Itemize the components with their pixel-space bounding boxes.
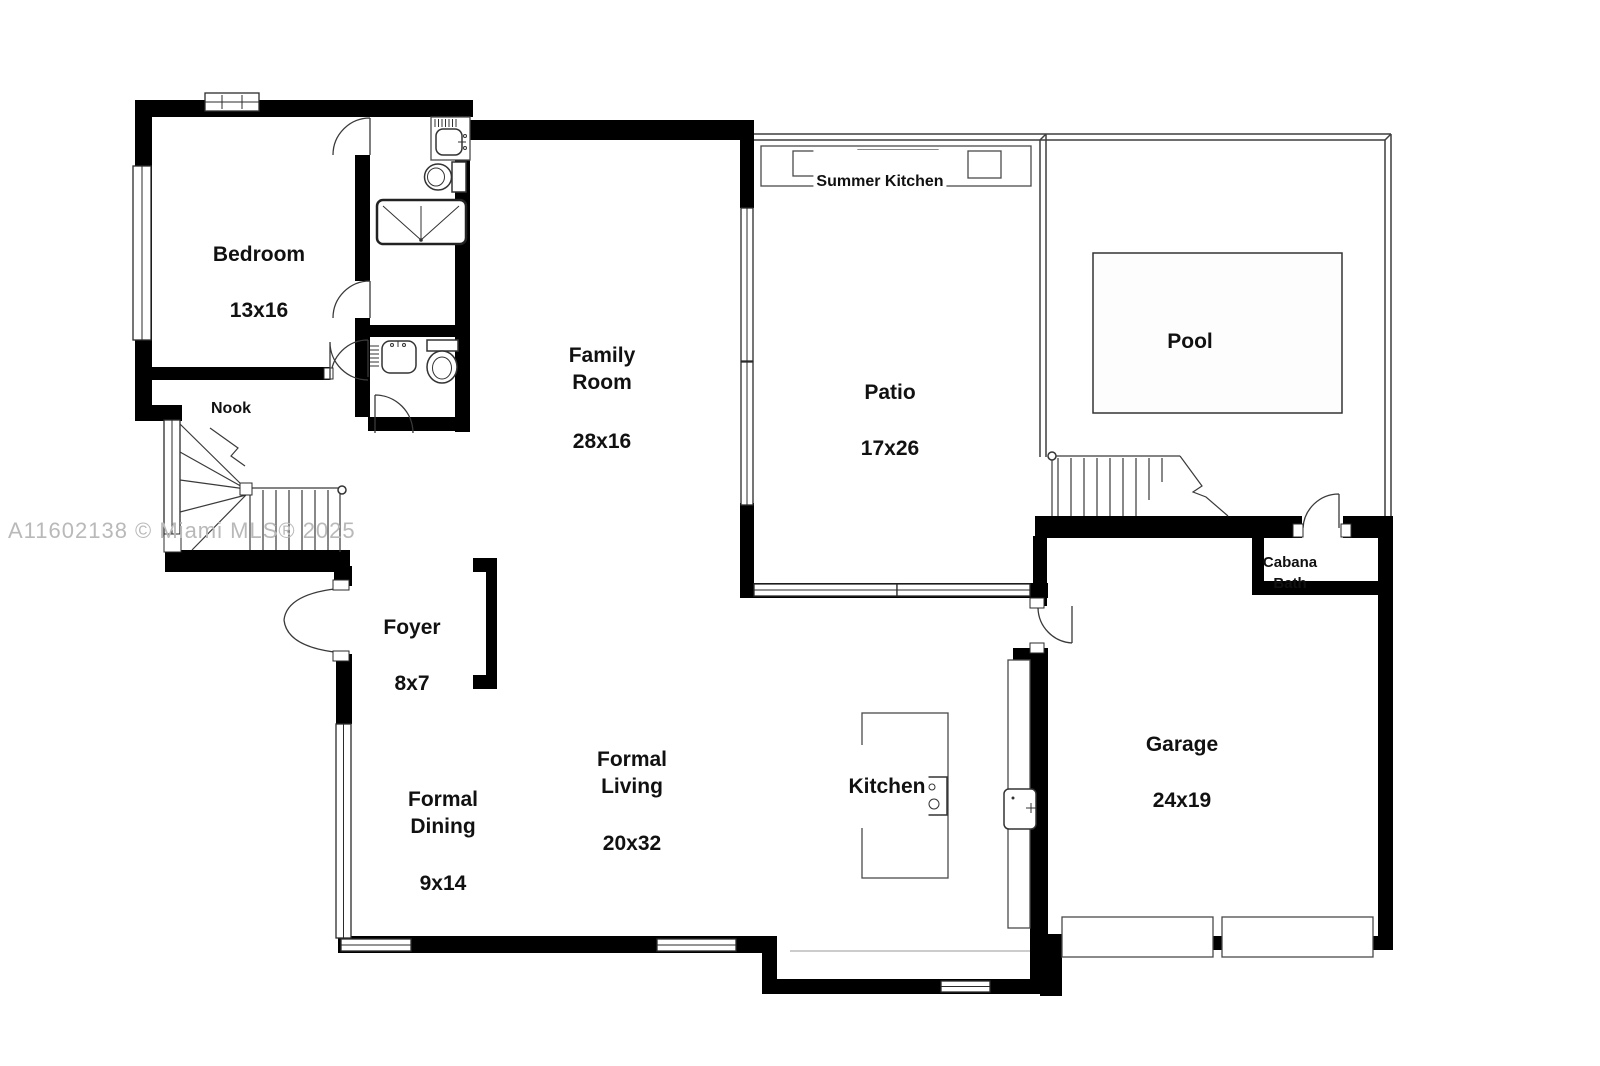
room-label-foyer: Foyer 8x7: [383, 586, 440, 726]
toilet-icon: [425, 162, 467, 192]
room-label-summer-kitchen: Summer Kitchen: [813, 150, 946, 213]
room-label-garage: Garage 24x19: [1146, 703, 1218, 843]
room-label-nook: Nook: [211, 377, 251, 440]
bathroom-powder: [370, 340, 458, 383]
shower-icon: [377, 200, 466, 244]
room-label-cabana-bath: Cabana Bath: [1263, 533, 1317, 614]
bathroom-ensuite: [377, 117, 470, 244]
toilet-icon: [427, 340, 458, 383]
sink-icon: [382, 341, 416, 373]
room-label-formal-dining: Formal Dining 9x14: [408, 758, 478, 925]
floorplan-canvas: Bedroom 13x16 Nook Family Room 28x16 Pat…: [0, 0, 1600, 1066]
pool-outline: [1093, 253, 1342, 413]
room-label-family-room: Family Room 28x16: [569, 314, 636, 483]
walls: [135, 100, 1393, 996]
room-label-patio: Patio 17x26: [861, 351, 919, 491]
room-label-formal-living: Formal Living 20x32: [597, 718, 667, 885]
stairs-pool-deck: [1048, 452, 1228, 516]
room-label-pool: Pool: [1167, 300, 1213, 383]
garage-door: [1222, 917, 1373, 957]
garage-door: [1062, 917, 1213, 957]
room-label-kitchen: Kitchen: [845, 745, 928, 828]
mls-watermark: A11602138 © Miami MLS® 2025: [8, 518, 356, 544]
foyer-archway-bracket: [473, 558, 497, 689]
room-label-bedroom: Bedroom 13x16: [213, 213, 305, 353]
